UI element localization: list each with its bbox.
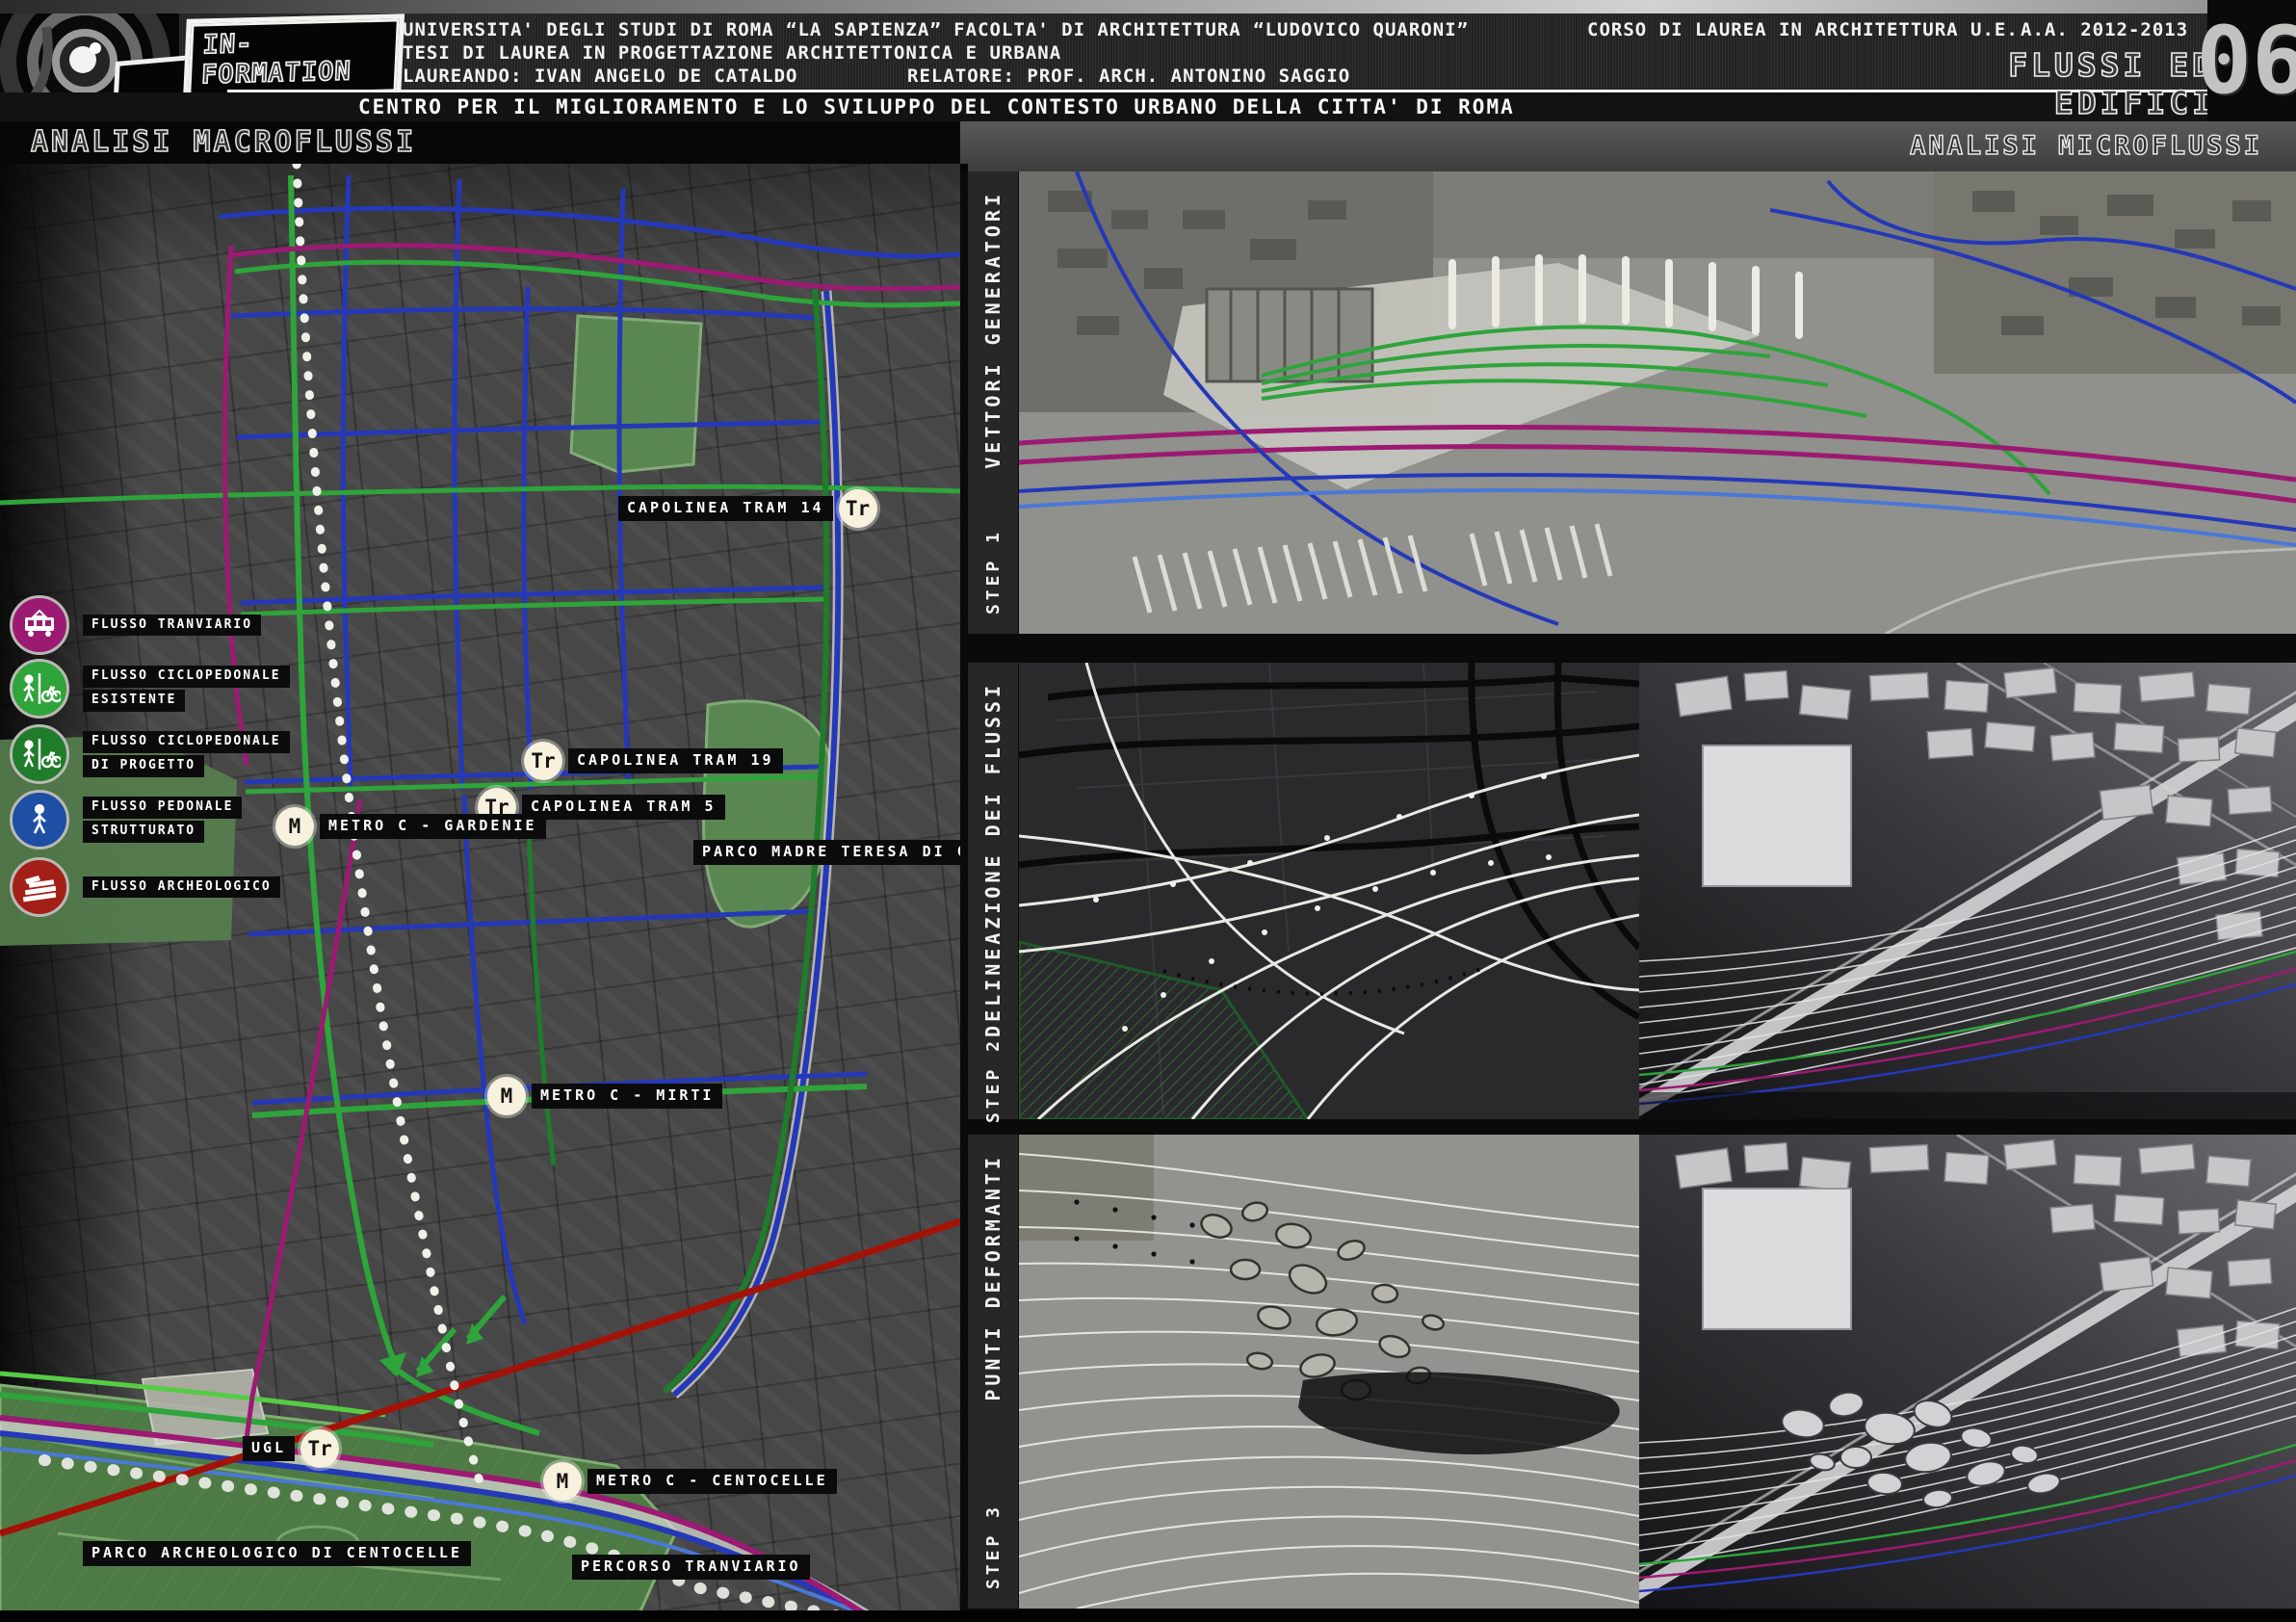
step3-title: PUNTI DEFORMANTI xyxy=(981,1154,1004,1401)
step1-title: VETTORI GENERATORI xyxy=(981,191,1004,469)
step3-render-graphic xyxy=(1639,1135,2296,1609)
step2-title: DELINEAZIONE DEI FLUSSI xyxy=(981,682,1004,1037)
map-label-percorso-tranviario: PERCORSO TRANVIARIO xyxy=(572,1555,810,1580)
tram-badge: Tr xyxy=(300,1429,339,1468)
map-label-text: CAPOLINEA TRAM 5 xyxy=(522,795,725,820)
archaeology-icon xyxy=(10,857,69,917)
step3-model-photo xyxy=(1019,1135,1639,1609)
tram-badge: Tr xyxy=(524,742,562,780)
legend-item-pedestrian: FLUSSO PEDONALE STRUTTURATO xyxy=(10,790,242,850)
board-subtitle: CENTRO PER IL MIGLIORAMENTO E LO SVILUPP… xyxy=(358,95,1515,118)
in-formation-logo-frame: IN-FORMATION xyxy=(188,18,400,96)
legend-label: FLUSSO ARCHEOLOGICO xyxy=(83,876,280,899)
map-label-text: METRO C - GARDENIE xyxy=(320,814,546,839)
step1-graphic xyxy=(1019,171,2296,634)
tram-icon xyxy=(10,595,69,655)
step2-model-photo xyxy=(1019,663,1639,1119)
pedestrian-bicycle-icon xyxy=(10,659,69,719)
map-label-text: CAPOLINEA TRAM 19 xyxy=(568,748,783,773)
macro-section-title: ANALISI MACROFLUSSI xyxy=(31,125,416,159)
legend-label: FLUSSO CICLOPEDONALE DI PROGETTO xyxy=(83,731,290,777)
tram-badge: Tr xyxy=(839,489,877,528)
legend-item-cyclo-project: FLUSSO CICLOPEDONALE DI PROGETTO xyxy=(10,724,290,784)
map-label-text: PARCO ARCHEOLOGICO DI CENTOCELLE xyxy=(83,1541,471,1566)
step3-label: STEP 3 xyxy=(983,1504,1004,1589)
map-label-metro-centocelle: M METRO C - CENTOCELLE xyxy=(543,1462,837,1501)
legend-label: FLUSSO TRANVIARIO xyxy=(83,615,261,637)
candidate-line: LAUREANDO: IVAN ANGELO DE CATALDO xyxy=(403,65,798,87)
course-line: CORSO DI LAUREA IN ARCHITETTURA U.E. xyxy=(1587,19,2019,40)
step3-render-image xyxy=(1639,1135,2296,1609)
sheet-number: 06 xyxy=(2196,7,2296,115)
pedestrian-icon xyxy=(10,790,69,850)
advisor-line: RELATORE: PROF. ARCH. ANTONINO SAGGIO xyxy=(907,65,1350,87)
legend-item-archaeological: FLUSSO ARCHEOLOGICO xyxy=(10,857,280,917)
top-gradient-strip xyxy=(0,0,2296,13)
legend-item-tram: FLUSSO TRANVIARIO xyxy=(10,595,261,655)
pedestrian-bicycle-icon xyxy=(10,724,69,784)
step2-render-graphic xyxy=(1639,663,2296,1119)
map-label-text: UGL xyxy=(243,1436,295,1461)
step2-render-image xyxy=(1639,663,2296,1119)
step1-label: STEP 1 xyxy=(983,529,1004,615)
academic-year: A.A. 2012-2013 xyxy=(2021,19,2188,40)
metro-badge: M xyxy=(543,1462,582,1501)
map-label-text: CAPOLINEA TRAM 14 xyxy=(618,496,833,521)
metro-badge: M xyxy=(487,1077,526,1115)
map-label-text: METRO C - MIRTI xyxy=(532,1084,722,1109)
step2-strip: DELINEAZIONE DEI FLUSSI STEP 2 xyxy=(968,663,1018,1119)
step1-strip: VETTORI GENERATORI STEP 1 xyxy=(968,171,1018,634)
map-label-ugl: UGL Tr xyxy=(243,1429,339,1468)
micro-section-title: ANALISI MICROFLUSSI xyxy=(960,131,2262,161)
legend-item-cyclo-existing: FLUSSO CICLOPEDONALE ESISTENTE xyxy=(10,659,290,719)
map-label-metro-gardenie: M METRO C - GARDENIE xyxy=(275,807,546,846)
map-label-text: PERCORSO TRANVIARIO xyxy=(572,1555,810,1580)
thesis-line: TESI DI LAUREA IN PROGETTAZIONE ARCHITET… xyxy=(403,42,1061,64)
step3-model-graphic xyxy=(1019,1135,1639,1609)
map-label-capolinea-tram-19: Tr CAPOLINEA TRAM 19 xyxy=(524,742,783,780)
main-building-block xyxy=(1703,1189,1851,1329)
green-arrowheads xyxy=(379,1323,483,1377)
thesis-board: UNIVERSITA' DEGLI STUDI DI ROMA “LA SAPI… xyxy=(0,0,2296,1622)
map-label-metro-mirti: M METRO C - MIRTI xyxy=(487,1077,722,1115)
legend-label: FLUSSO PEDONALE STRUTTURATO xyxy=(83,797,242,843)
step3-strip: PUNTI DEFORMANTI STEP 3 xyxy=(968,1135,1018,1609)
legend-label: FLUSSO CICLOPEDONALE ESISTENTE xyxy=(83,666,290,712)
metro-badge: M xyxy=(275,807,314,846)
map-label-capolinea-tram-14: CAPOLINEA TRAM 14 Tr xyxy=(618,489,877,528)
bottom-bar xyxy=(0,1610,2296,1622)
macro-flows-map: FLUSSO TRANVIARIO FLUSSO CICLOPEDONALE E… xyxy=(0,164,960,1622)
sheet-title: FLUSSI ED EDIFICI xyxy=(1888,46,2215,121)
in-formation-logo-text: IN-FORMATION xyxy=(200,29,352,90)
map-label-parco-archeologico: PARCO ARCHEOLOGICO DI CENTOCELLE xyxy=(83,1541,471,1566)
sheet-number-box: 06 xyxy=(2207,0,2296,121)
map-label-text: METRO C - CENTOCELLE xyxy=(587,1469,837,1494)
step2-label: STEP 2 xyxy=(983,1037,1004,1123)
university-line: UNIVERSITA' DEGLI STUDI DI ROMA “LA SAPI… xyxy=(403,19,1469,40)
main-building-block xyxy=(1703,746,1851,886)
step1-aerial-image xyxy=(1019,171,2296,634)
step2-model-graphic xyxy=(1019,663,1639,1119)
